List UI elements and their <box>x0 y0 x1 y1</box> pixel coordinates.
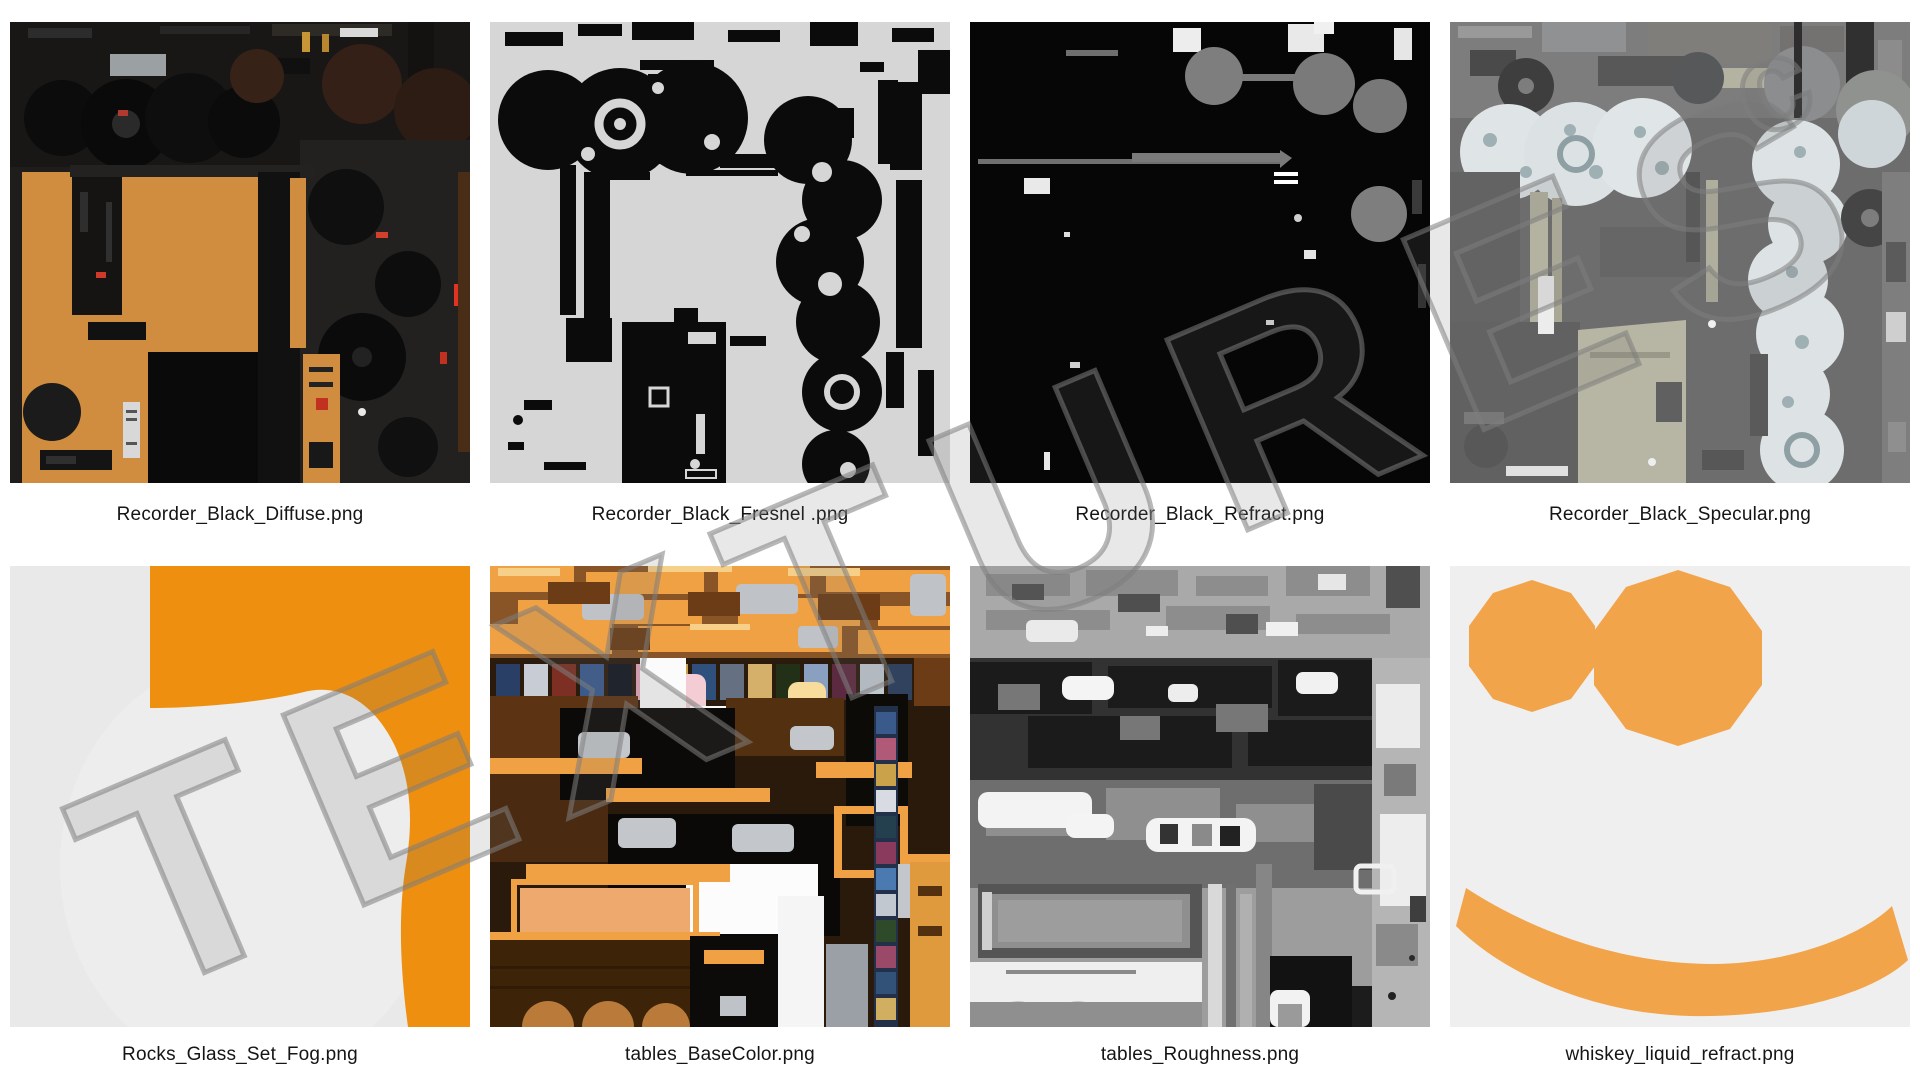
thumbnail-recorder-black-refract[interactable] <box>970 22 1430 483</box>
thumbnail-recorder-black-fresnel[interactable] <box>490 22 950 483</box>
tables-roughness-art <box>970 566 1430 1027</box>
rocks-glass-set-fog-art <box>10 566 470 1027</box>
texture-filename: Recorder_Black_Fresnel .png <box>490 503 950 527</box>
thumbnail-rocks-glass-set-fog[interactable] <box>10 566 470 1027</box>
texture-filename: Recorder_Black_Specular.png <box>1450 503 1910 527</box>
texture-filename: Recorder_Black_Refract.png <box>970 503 1430 527</box>
texture-filename: tables_Roughness.png <box>970 1043 1430 1067</box>
whiskey-liquid-refract-art <box>1450 566 1910 1027</box>
recorder-black-diffuse-art <box>10 22 470 483</box>
tables-basecolor-art <box>490 566 950 1027</box>
thumbnail-recorder-black-diffuse[interactable] <box>10 22 470 483</box>
texture-filename: tables_BaseColor.png <box>490 1043 950 1067</box>
recorder-black-refract-art <box>970 22 1430 483</box>
thumbnail-tables-roughness[interactable] <box>970 566 1430 1027</box>
texture-filename: Rocks_Glass_Set_Fog.png <box>10 1043 470 1067</box>
texture-filename: Recorder_Black_Diffuse.png <box>10 503 470 527</box>
thumbnail-tables-basecolor[interactable] <box>490 566 950 1027</box>
texture-preview-sheet: Recorder_Black_Diffuse.png Recorder_Blac… <box>0 0 1920 1080</box>
recorder-black-specular-art <box>1450 22 1910 483</box>
thumbnail-recorder-black-specular[interactable] <box>1450 22 1910 483</box>
recorder-black-fresnel-art <box>490 22 950 483</box>
texture-filename: whiskey_liquid_refract.png <box>1450 1043 1910 1067</box>
thumbnail-whiskey-liquid-refract[interactable] <box>1450 566 1910 1027</box>
